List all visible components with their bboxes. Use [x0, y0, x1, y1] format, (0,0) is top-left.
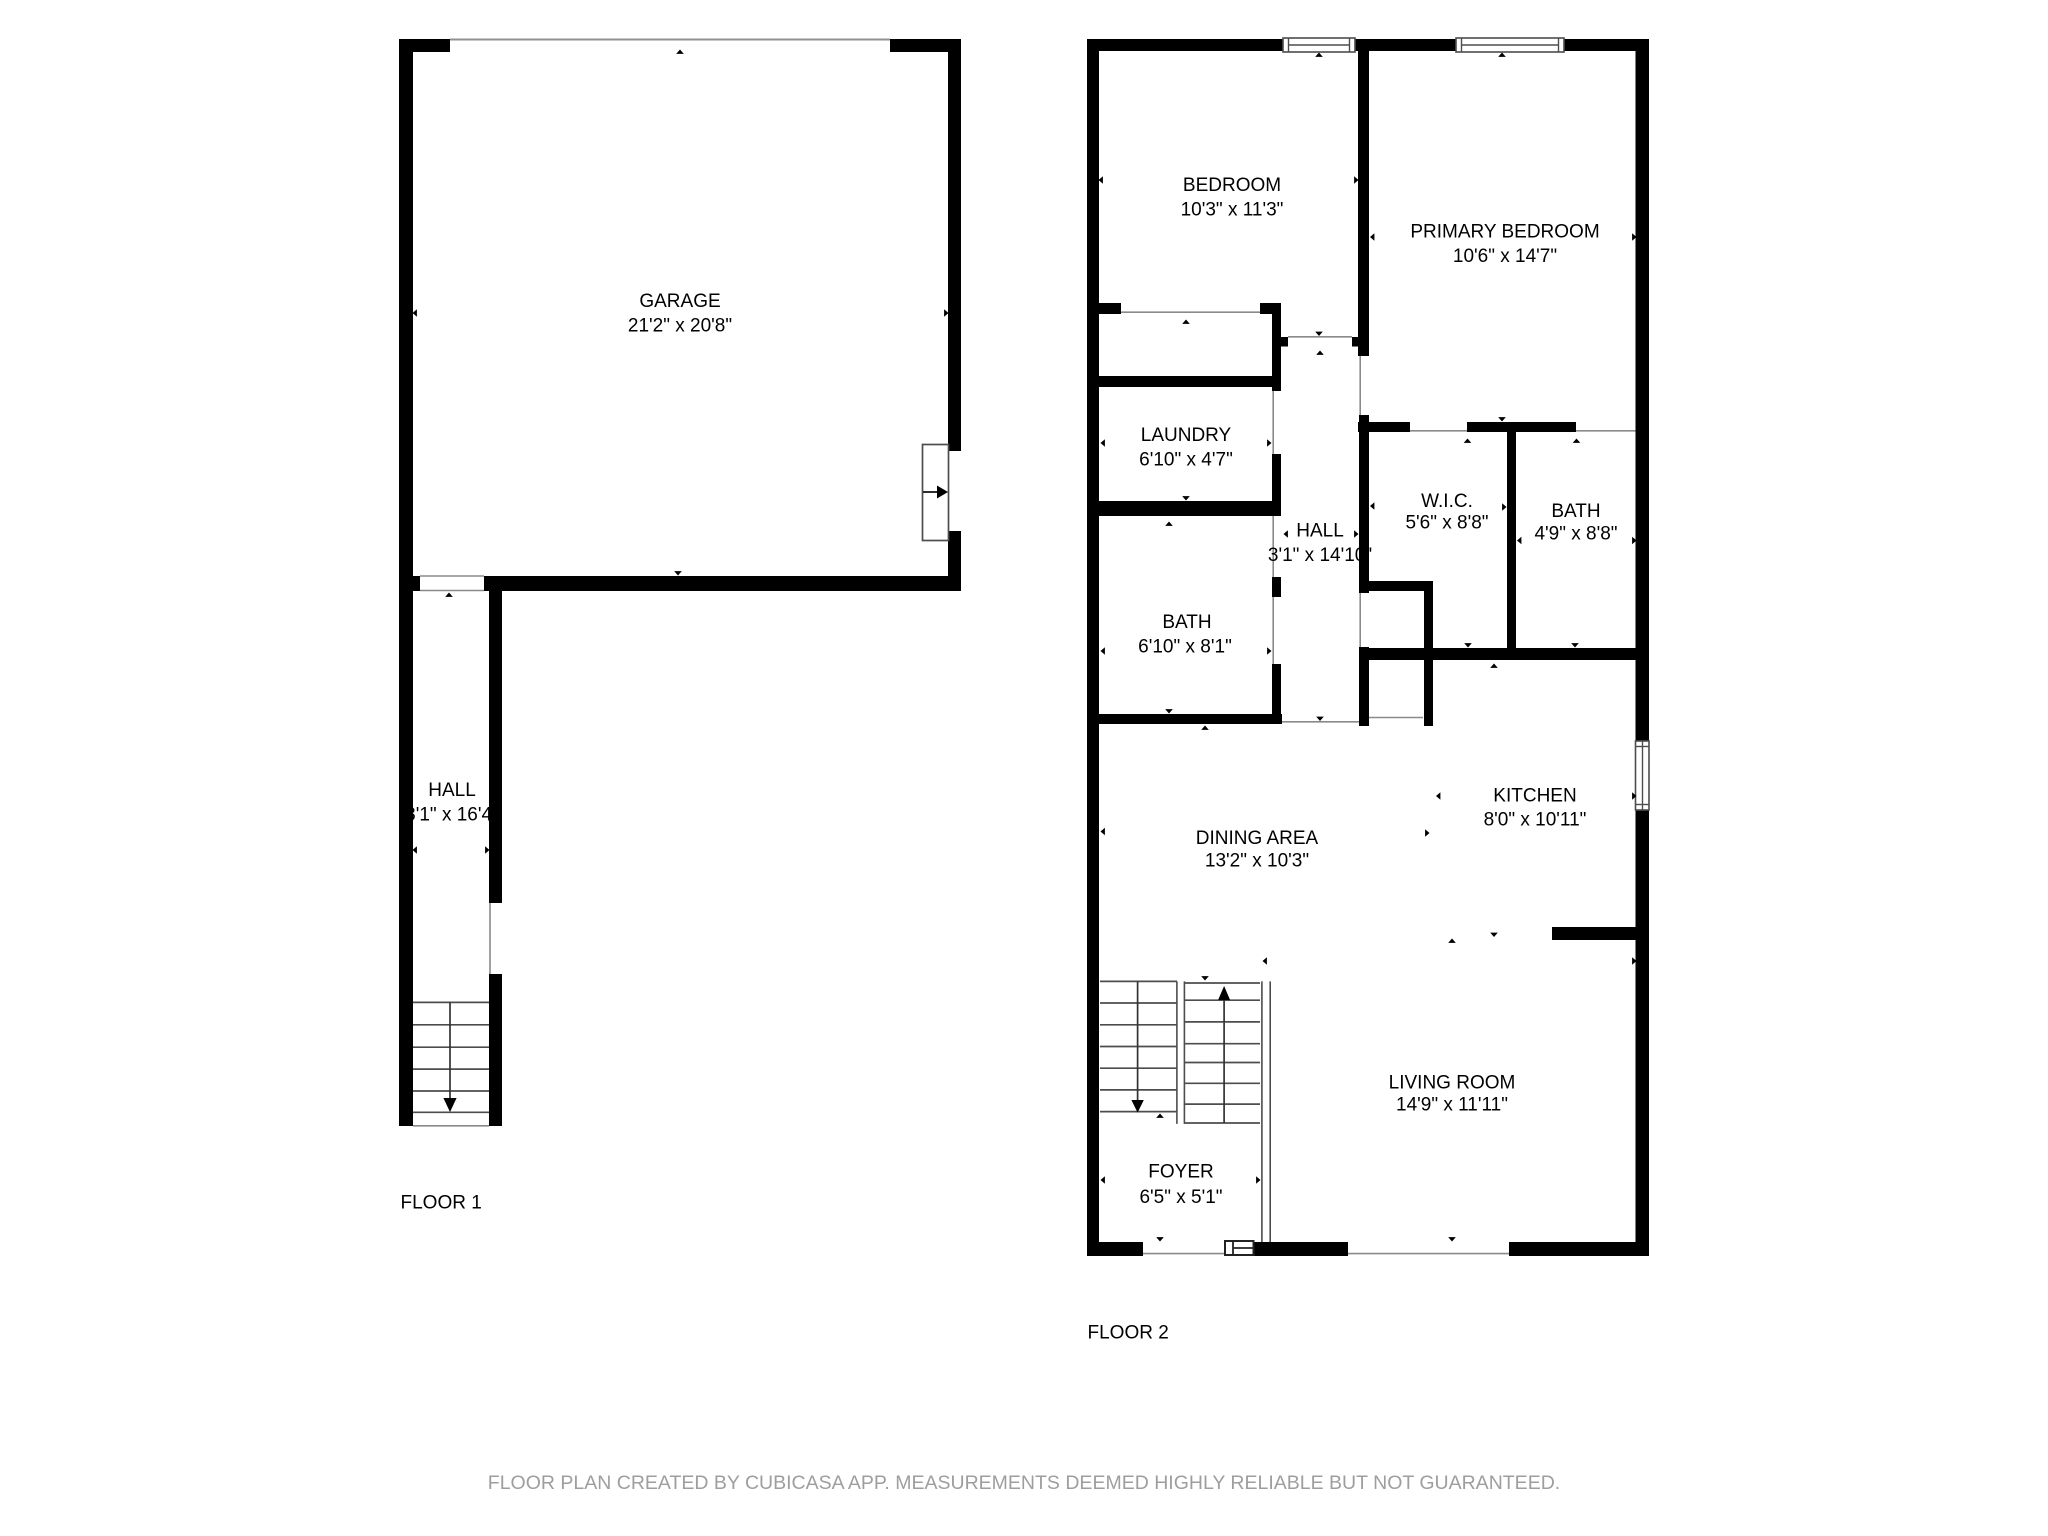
svg-text:BEDROOM: BEDROOM [1183, 175, 1281, 196]
svg-text:W.I.C.: W.I.C. [1421, 491, 1473, 512]
svg-text:6'10" x 8'1": 6'10" x 8'1" [1138, 637, 1232, 658]
svg-text:21'2" x 20'8": 21'2" x 20'8" [628, 316, 732, 337]
svg-text:GARAGE: GARAGE [639, 291, 720, 312]
svg-text:HALL: HALL [428, 780, 476, 801]
svg-text:LIVING ROOM: LIVING ROOM [1389, 1073, 1516, 1094]
svg-text:FLOOR 1: FLOOR 1 [401, 1193, 482, 1214]
svg-text:6'5" x 5'1": 6'5" x 5'1" [1139, 1187, 1222, 1208]
svg-text:10'3" x 11'3": 10'3" x 11'3" [1181, 200, 1284, 221]
svg-text:3'1" x 14'10": 3'1" x 14'10" [1268, 545, 1372, 566]
svg-text:BATH: BATH [1162, 612, 1211, 633]
svg-text:6'10" x 4'7": 6'10" x 4'7" [1139, 450, 1233, 471]
svg-text:14'9" x 11'11": 14'9" x 11'11" [1396, 1095, 1508, 1116]
svg-text:PRIMARY BEDROOM: PRIMARY BEDROOM [1410, 222, 1599, 243]
svg-text:LAUNDRY: LAUNDRY [1141, 425, 1232, 446]
svg-text:KITCHEN: KITCHEN [1493, 786, 1576, 807]
svg-text:BATH: BATH [1551, 501, 1600, 522]
svg-text:DINING AREA: DINING AREA [1196, 828, 1319, 849]
svg-text:8'0" x 10'11": 8'0" x 10'11" [1484, 810, 1587, 831]
svg-text:4'9" x 8'8": 4'9" x 8'8" [1534, 524, 1617, 545]
svg-text:FLOOR PLAN CREATED BY CUBICASA: FLOOR PLAN CREATED BY CUBICASA APP. MEAS… [488, 1472, 1560, 1494]
svg-text:FOYER: FOYER [1148, 1162, 1213, 1183]
svg-text:13'2" x 10'3": 13'2" x 10'3" [1205, 851, 1309, 872]
svg-text:5'6" x 8'8": 5'6" x 8'8" [1405, 513, 1488, 534]
svg-text:10'6" x 14'7": 10'6" x 14'7" [1453, 246, 1557, 267]
svg-text:3'1" x 16'4": 3'1" x 16'4" [405, 805, 499, 826]
svg-text:HALL: HALL [1296, 521, 1344, 542]
svg-text:FLOOR 2: FLOOR 2 [1088, 1323, 1169, 1344]
